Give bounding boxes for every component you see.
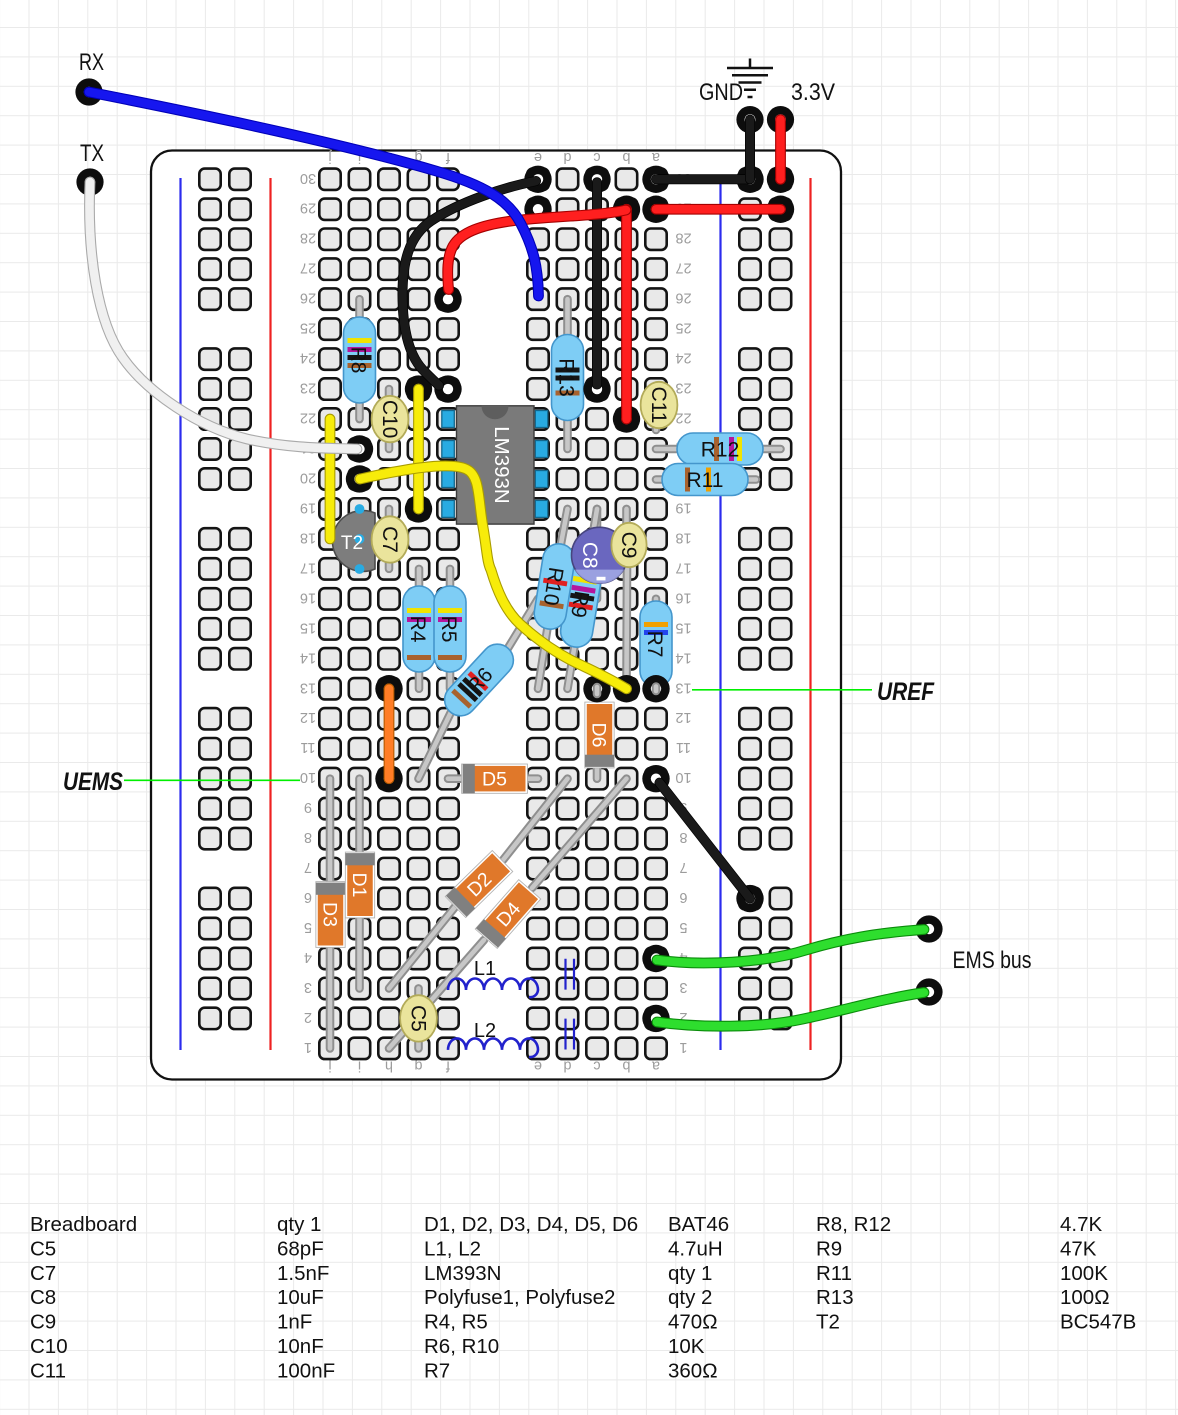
svg-text:28: 28 [300,230,316,246]
svg-text:L2: L2 [474,1020,496,1042]
svg-text:26: 26 [675,290,691,306]
svg-text:22: 22 [675,410,691,426]
svg-text:L1, L2: L1, L2 [424,1237,481,1260]
svg-text:D1, D2, D3, D4, D5, D6: D1, D2, D3, D4, D5, D6 [424,1213,638,1236]
svg-text:EMS bus: EMS bus [953,947,1032,974]
svg-text:6: 6 [679,889,687,905]
svg-text:17: 17 [300,559,316,575]
svg-text:68pF: 68pF [277,1237,324,1260]
svg-text:R8, R12: R8, R12 [816,1213,891,1236]
svg-text:12: 12 [675,709,691,725]
svg-text:16: 16 [675,589,691,605]
svg-text:24: 24 [675,350,691,366]
svg-text:23: 23 [675,380,691,396]
svg-text:9: 9 [304,799,312,815]
svg-text:C7: C7 [30,1262,56,1285]
svg-text:T2: T2 [341,533,363,554]
svg-text:5: 5 [679,919,687,935]
svg-text:29: 29 [300,200,316,216]
svg-text:27: 27 [675,260,691,276]
svg-text:17: 17 [675,559,691,575]
svg-text:10: 10 [300,769,316,785]
svg-text:30: 30 [300,170,316,186]
svg-text:4: 4 [304,949,312,965]
svg-text:3: 3 [304,979,312,995]
svg-text:BC547B: BC547B [1060,1311,1136,1334]
svg-text:TX: TX [80,140,104,167]
svg-text:10nF: 10nF [277,1335,324,1358]
svg-text:7: 7 [304,859,312,875]
svg-text:LM393N: LM393N [424,1262,502,1285]
svg-text:C11: C11 [30,1359,66,1382]
svg-text:1.5nF: 1.5nF [277,1262,329,1285]
svg-text:j: j [328,149,332,165]
svg-text:10uF: 10uF [277,1286,324,1309]
svg-text:19: 19 [300,499,316,515]
svg-text:UEMS: UEMS [63,768,123,796]
svg-text:25: 25 [675,320,691,336]
svg-text:Polyfuse1, Polyfuse2: Polyfuse1, Polyfuse2 [424,1286,615,1309]
svg-text:11: 11 [300,739,315,755]
svg-text:C9: C9 [30,1311,56,1334]
svg-text:R7: R7 [643,631,666,658]
svg-text:1nF: 1nF [277,1311,312,1334]
svg-text:C7: C7 [378,526,401,553]
svg-text:C11: C11 [647,387,670,424]
svg-text:6: 6 [304,889,312,905]
svg-text:20: 20 [300,470,316,486]
svg-text:c: c [593,149,600,165]
svg-text:14: 14 [300,649,316,665]
svg-text:L1: L1 [474,958,496,980]
svg-text:GND: GND [699,79,743,106]
svg-text:24: 24 [300,350,316,366]
svg-text:qty 2: qty 2 [668,1286,712,1309]
svg-text:15: 15 [300,619,316,635]
svg-text:22: 22 [300,410,316,426]
svg-text:d: d [563,149,571,165]
svg-text:15: 15 [675,619,691,635]
svg-text:28: 28 [675,230,691,246]
svg-text:18: 18 [675,529,691,545]
svg-text:14: 14 [675,649,691,665]
svg-text:7: 7 [679,859,687,875]
svg-text:T2: T2 [816,1311,840,1334]
svg-text:4.7K: 4.7K [1060,1213,1102,1236]
svg-text:26: 26 [300,290,316,306]
svg-text:Breadboard: Breadboard [30,1213,137,1236]
svg-text:C5: C5 [30,1237,56,1260]
svg-text:C8: C8 [30,1286,56,1309]
svg-text:qty 1: qty 1 [668,1262,712,1285]
svg-text:8: 8 [304,829,312,845]
svg-text:LM393N: LM393N [490,426,513,504]
svg-text:R4: R4 [406,616,429,643]
svg-text:R8: R8 [347,347,370,374]
svg-text:47K: 47K [1060,1237,1097,1260]
svg-text:100Ω: 100Ω [1060,1286,1110,1309]
svg-text:R5: R5 [437,616,460,643]
svg-text:19: 19 [675,499,691,515]
svg-text:5: 5 [304,919,312,935]
svg-text:e: e [534,149,542,165]
svg-text:1: 1 [679,1039,687,1055]
svg-text:D3: D3 [319,902,341,927]
svg-text:16: 16 [300,589,316,605]
svg-text:13: 13 [675,679,691,695]
svg-text:R11: R11 [687,469,724,492]
svg-text:100K: 100K [1060,1262,1108,1285]
svg-text:3.3V: 3.3V [791,79,835,106]
svg-text:2: 2 [304,1009,312,1025]
svg-text:RX: RX [79,49,104,76]
svg-text:R13: R13 [555,358,578,397]
svg-text:R9: R9 [816,1237,842,1260]
svg-text:R6, R10: R6, R10 [424,1335,499,1358]
svg-text:a: a [651,149,660,165]
svg-text:C10: C10 [378,400,401,439]
svg-text:12: 12 [300,709,316,725]
svg-text:D5: D5 [482,769,507,791]
svg-text:10: 10 [675,769,691,785]
svg-text:23: 23 [300,380,316,396]
svg-text:C8: C8 [578,542,601,569]
svg-text:R7: R7 [424,1359,450,1382]
svg-text:25: 25 [300,320,316,336]
svg-text:100nF: 100nF [277,1359,335,1382]
svg-text:b: b [622,149,630,165]
svg-text:13: 13 [300,679,316,695]
svg-text:R13: R13 [816,1286,854,1309]
svg-text:11: 11 [676,739,691,755]
svg-text:10K: 10K [668,1335,705,1358]
svg-text:C9: C9 [617,532,640,559]
svg-text:360Ω: 360Ω [668,1359,718,1382]
svg-text:C10: C10 [30,1335,68,1358]
svg-text:C5: C5 [407,1005,430,1032]
svg-text:D6: D6 [588,723,610,748]
svg-text:27: 27 [300,260,316,276]
svg-text:UREF: UREF [877,678,935,706]
svg-text:8: 8 [679,829,687,845]
svg-text:3: 3 [679,979,687,995]
svg-text:18: 18 [300,529,316,545]
svg-text:BAT46: BAT46 [668,1213,729,1236]
svg-text:qty 1: qty 1 [277,1213,321,1236]
svg-text:R12: R12 [701,439,740,462]
svg-text:4.7uH: 4.7uH [668,1237,723,1260]
svg-text:R11: R11 [816,1262,852,1285]
svg-text:D1: D1 [348,873,370,898]
svg-text:1: 1 [304,1039,312,1055]
svg-text:R4, R5: R4, R5 [424,1311,488,1334]
svg-text:470Ω: 470Ω [668,1311,718,1334]
